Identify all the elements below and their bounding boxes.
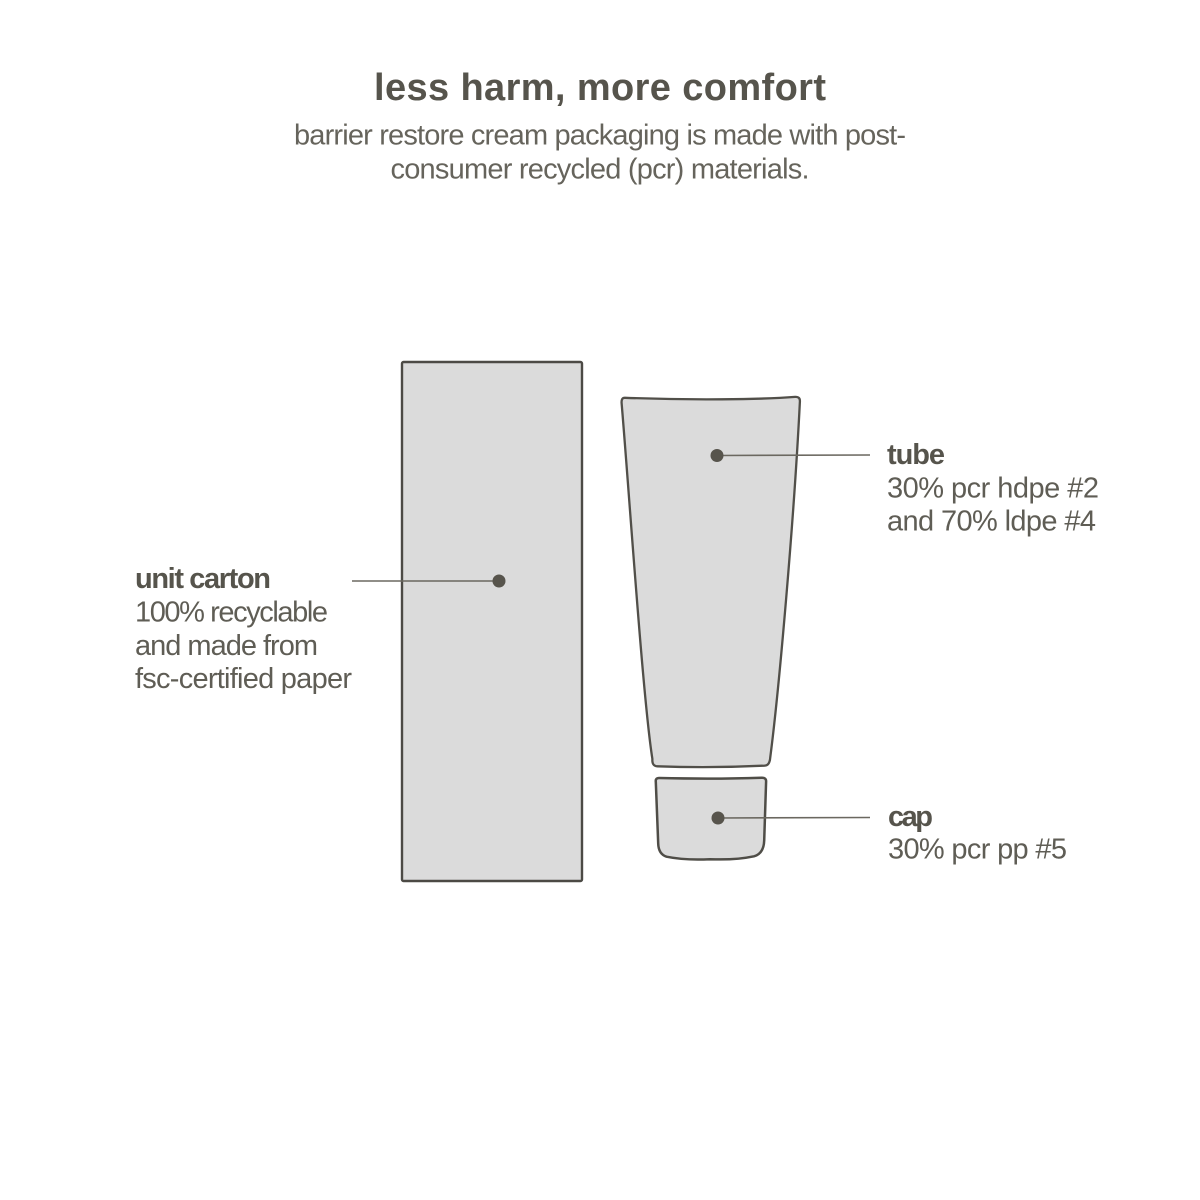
svg-text:cap: cap xyxy=(888,801,933,833)
svg-text:tube: tube xyxy=(887,439,945,471)
svg-text:and made from: and made from xyxy=(135,630,318,662)
svg-text:and 70% ldpe #4: and 70% ldpe #4 xyxy=(887,506,1096,538)
svg-text:100% recyclable: 100% recyclable xyxy=(135,597,328,629)
svg-text:30% pcr pp #5: 30% pcr pp #5 xyxy=(888,834,1067,866)
svg-text:consumer recycled (pcr) materi: consumer recycled (pcr) materials. xyxy=(391,154,810,186)
svg-text:fsc-certified paper: fsc-certified paper xyxy=(135,663,352,695)
svg-text:barrier restore cream packagin: barrier restore cream packaging is made … xyxy=(294,119,906,151)
svg-text:less harm, more comfort: less harm, more comfort xyxy=(374,67,826,109)
svg-text:unit carton: unit carton xyxy=(135,563,271,595)
svg-text:30% pcr hdpe #2: 30% pcr hdpe #2 xyxy=(887,473,1099,505)
